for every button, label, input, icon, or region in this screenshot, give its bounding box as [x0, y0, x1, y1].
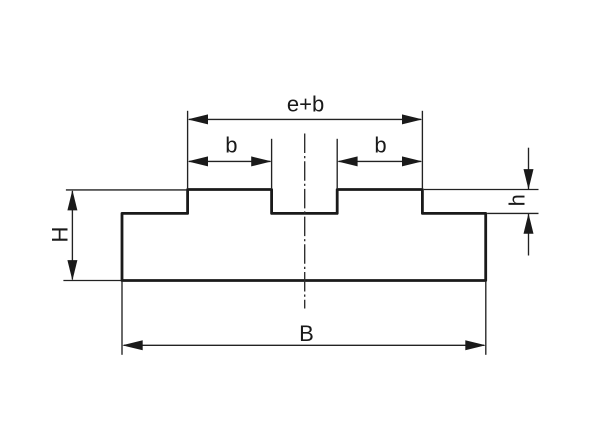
- svg-text:h: h: [505, 194, 530, 206]
- svg-text:B: B: [299, 321, 314, 346]
- svg-text:H: H: [48, 227, 73, 243]
- svg-text:e+b: e+b: [287, 91, 324, 116]
- svg-text:b: b: [374, 133, 386, 158]
- svg-text:b: b: [225, 133, 237, 158]
